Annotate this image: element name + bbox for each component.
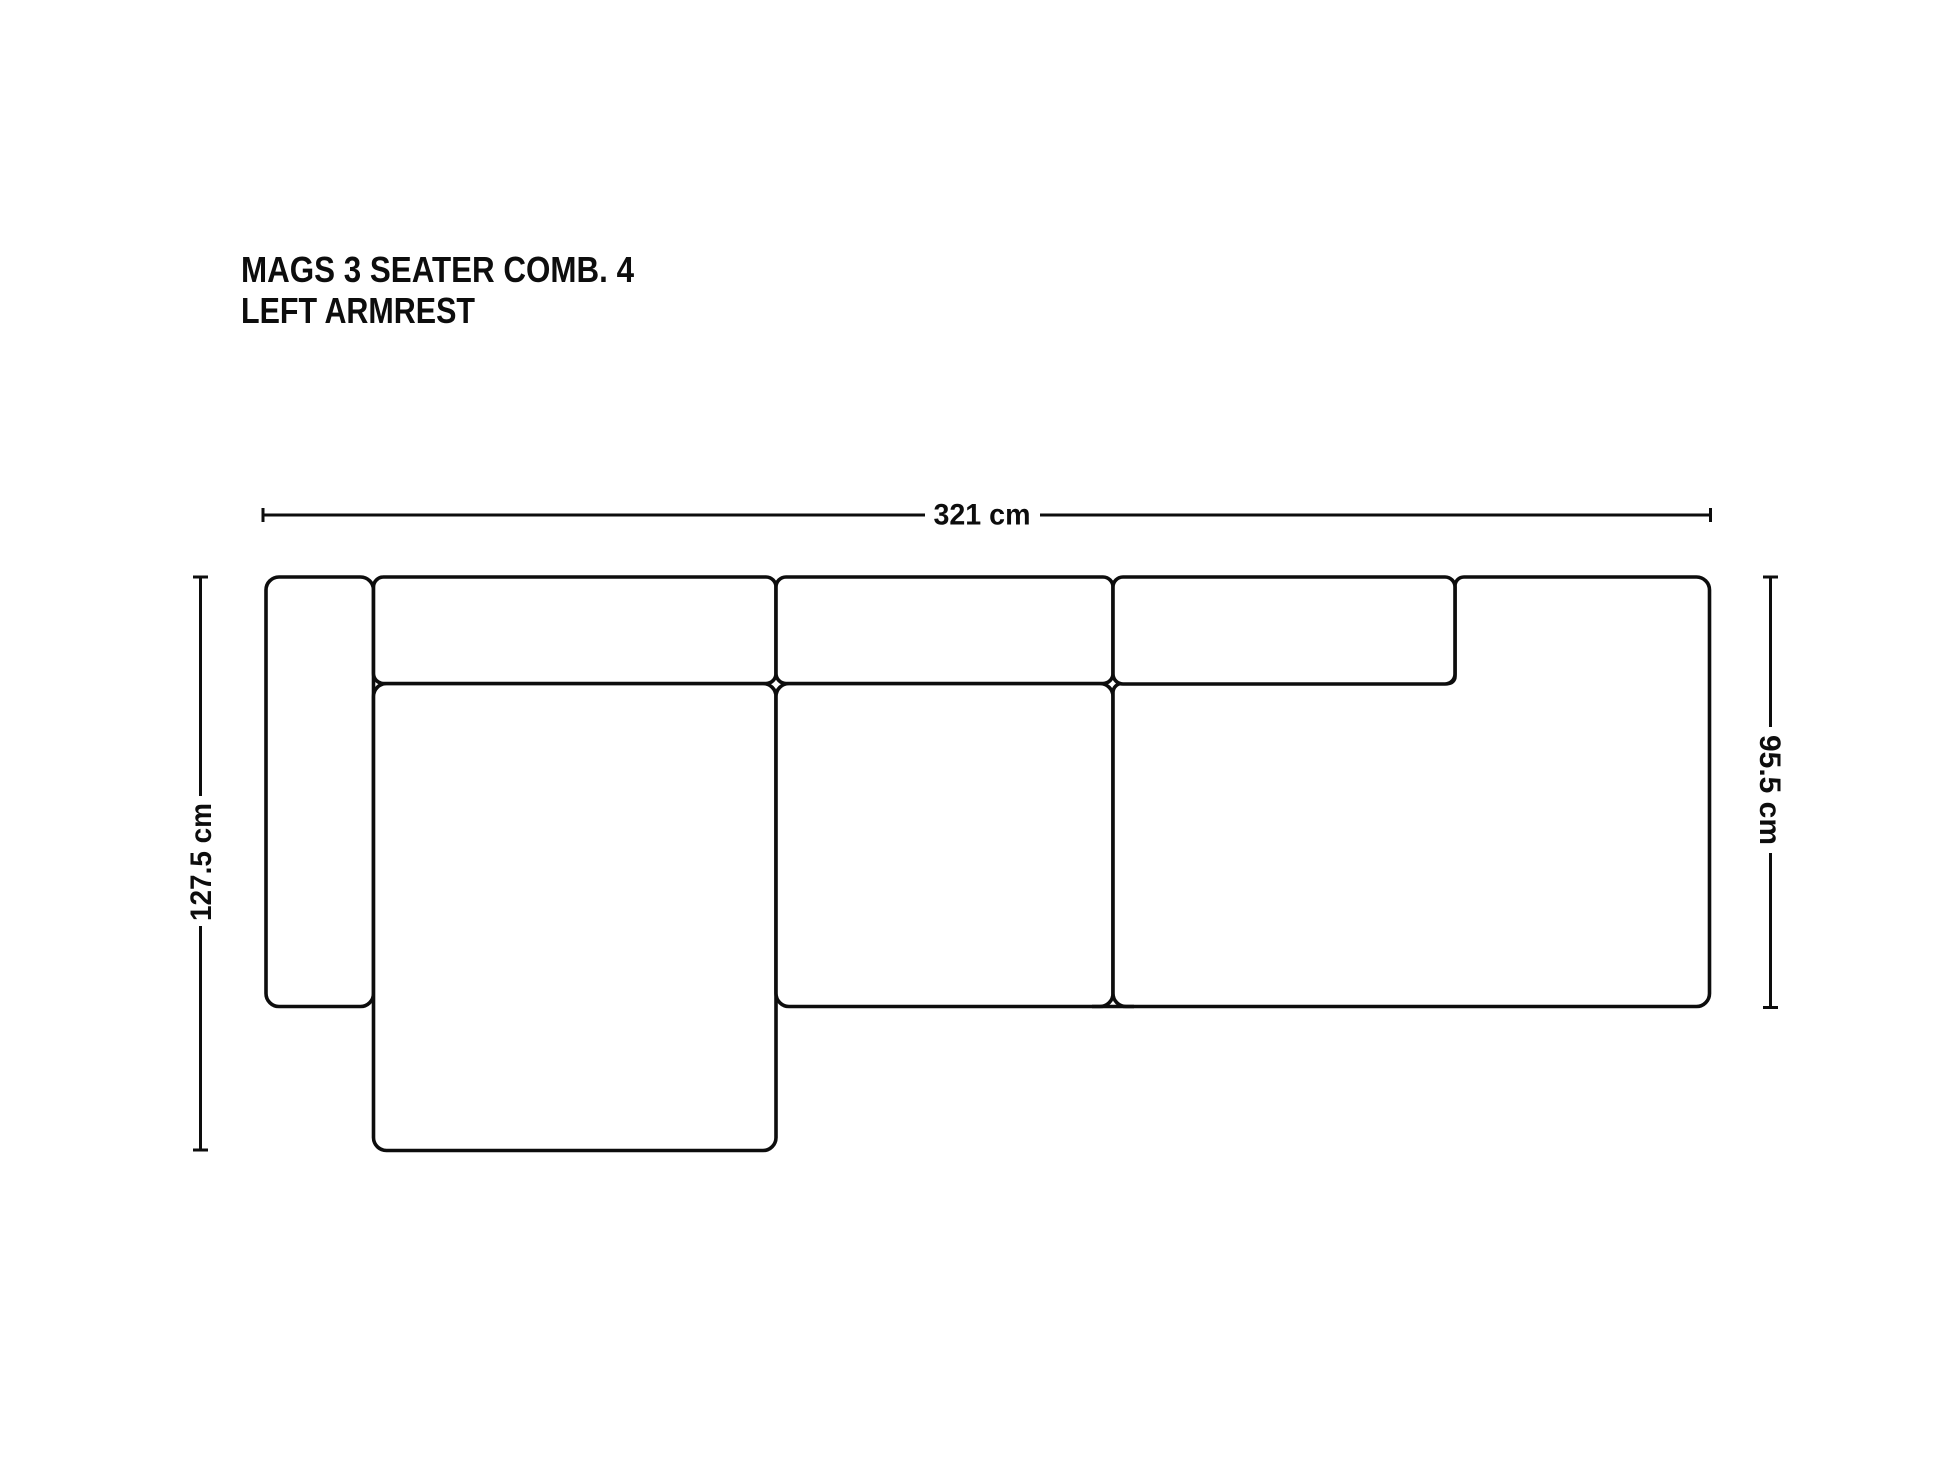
svg-text:LEFT ARMREST: LEFT ARMREST <box>241 290 475 331</box>
svg-text:MAGS 3 SEATER COMB. 4: MAGS 3 SEATER COMB. 4 <box>241 249 634 290</box>
svg-text:95.5 cm: 95.5 cm <box>1753 735 1786 845</box>
svg-text:321 cm: 321 cm <box>934 499 1031 532</box>
svg-text:127.5 cm: 127.5 cm <box>185 803 218 921</box>
